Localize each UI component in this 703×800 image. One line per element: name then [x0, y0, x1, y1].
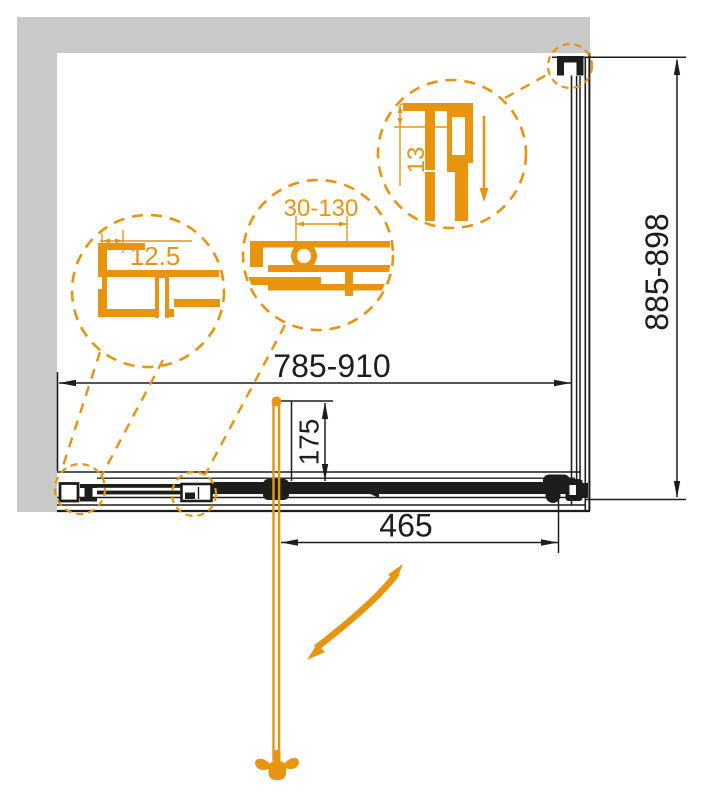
handle-offset-label: 175 — [294, 419, 325, 466]
adjustment-rail-section — [247, 216, 390, 296]
arrowhead-up — [674, 58, 680, 75]
arrowhead-up — [322, 402, 328, 419]
dimension-height: 885-898 — [639, 58, 680, 498]
dimension-width: 785-910 — [59, 348, 571, 386]
detail-circle-wall-profile: 12.5 — [72, 215, 224, 367]
wall-top — [17, 17, 590, 53]
height-dimension-label: 885-898 — [639, 213, 675, 330]
arrowhead-down — [674, 481, 680, 498]
wall-profile-label: 12.5 — [130, 241, 181, 271]
dimension-door-opening: 465 — [281, 508, 558, 546]
door-swing-arrow — [307, 564, 403, 660]
door-opening-label: 465 — [379, 508, 432, 544]
wall-left — [17, 17, 57, 512]
roller-block — [263, 479, 289, 500]
corner-roller-cluster — [543, 475, 588, 504]
adjustment-label: 30-130 — [284, 195, 359, 222]
wall-profile-endcap — [60, 484, 78, 502]
top-corner-fixture — [557, 56, 584, 76]
handle-knob — [255, 750, 299, 780]
width-dimension-label: 785-910 — [273, 348, 390, 384]
arrowhead-left — [281, 539, 298, 545]
arrowhead-left — [59, 380, 76, 386]
door-handle-bar — [255, 397, 299, 781]
detail-circle-outline — [72, 215, 224, 367]
technical-drawing-canvas: 785-910 885-898 465 175 — [0, 0, 703, 800]
dimension-handle-offset: 175 — [294, 402, 329, 481]
arrowhead-right — [541, 539, 558, 545]
rail-connector — [80, 484, 97, 502]
detail-circle-adjustment: 30-130 — [243, 180, 393, 330]
arrowhead-right — [554, 380, 571, 386]
shower-enclosure-diagram: 785-910 885-898 465 175 — [0, 0, 703, 800]
detail-circle-top-profile: 13 — [378, 80, 526, 228]
top-profile-label: 13 — [403, 147, 430, 174]
enclosure-linework — [57, 53, 686, 553]
